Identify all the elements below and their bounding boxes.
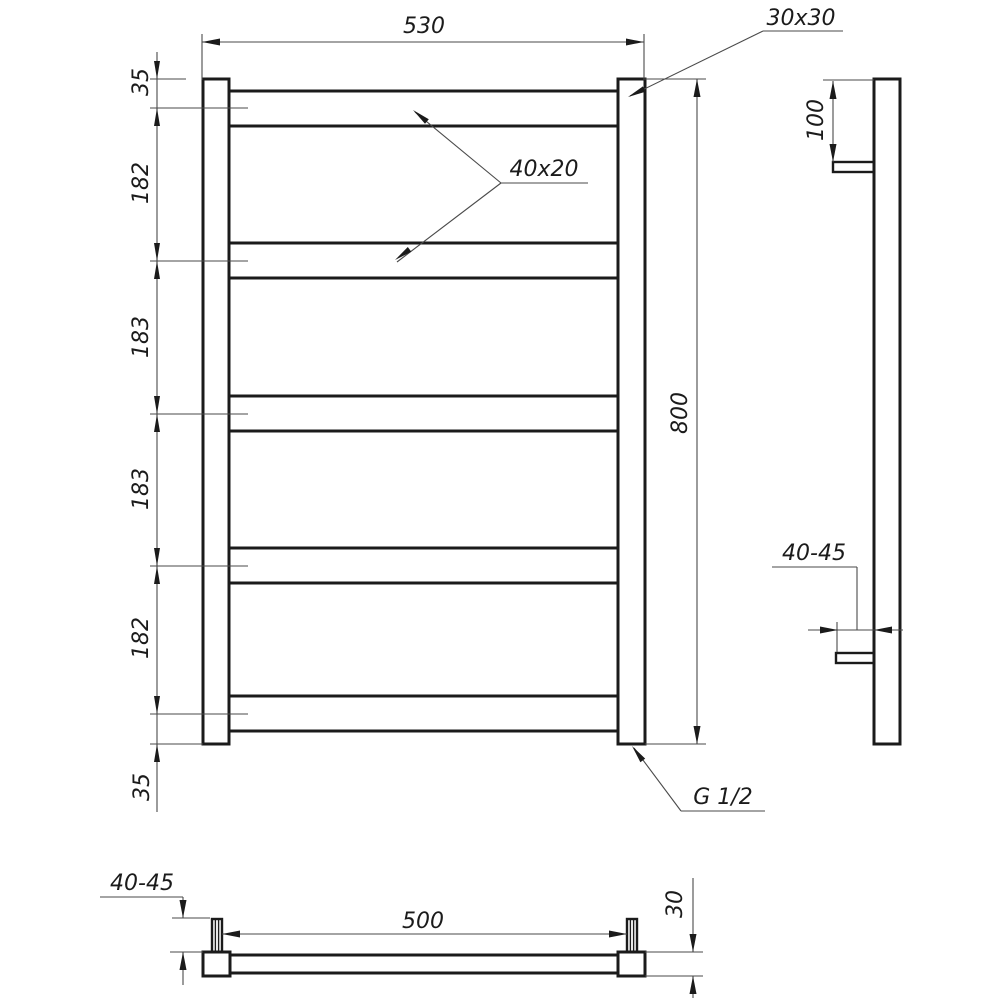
right-bracket-block xyxy=(618,952,645,976)
arrowhead xyxy=(626,39,644,46)
drawing-page: 530 35 182 183 183 182 35 800 xyxy=(0,0,1000,1000)
label-spacing-1: 182 xyxy=(129,162,154,204)
towel-rail-technical-drawing: 530 35 182 183 183 182 35 800 xyxy=(0,0,1000,1000)
leader-post-profile: 30x30 xyxy=(628,6,843,97)
side-view xyxy=(833,79,900,744)
rung-3 xyxy=(229,396,618,431)
label-overall-width: 530 xyxy=(403,14,445,39)
label-overall-height: 800 xyxy=(668,392,693,434)
label-spacing-2: 183 xyxy=(129,316,154,358)
dimension-side-wall-clearance: 40-45 xyxy=(772,541,903,652)
dimension-bracket-span: 500 xyxy=(222,909,627,938)
dimension-overall-width: 530 xyxy=(202,14,644,80)
label-bracket-top-offset: 100 xyxy=(804,99,829,141)
right-post xyxy=(618,79,645,744)
leader-connection-thread: G 1/2 xyxy=(632,746,765,811)
label-side-wall-clearance: 40-45 xyxy=(782,541,846,566)
dimension-profile-depth: 30 xyxy=(645,878,703,998)
label-bottom-wall-clearance: 40-45 xyxy=(110,871,174,896)
top-wall-bracket xyxy=(833,162,874,172)
label-profile-depth: 30 xyxy=(663,890,688,918)
rung-4 xyxy=(229,548,618,583)
dimension-bottom-wall-clearance: 40-45 xyxy=(100,871,210,985)
front-view xyxy=(203,79,645,744)
label-post-profile: 30x30 xyxy=(766,6,835,31)
right-pipe-fitting xyxy=(627,919,637,952)
rung-5 xyxy=(229,696,618,731)
left-pipe-fitting xyxy=(212,919,222,952)
side-post xyxy=(874,79,900,744)
dimension-bracket-top-offset: 100 xyxy=(804,80,874,162)
label-bracket-span: 500 xyxy=(402,909,444,934)
dimension-overall-height: 800 xyxy=(645,79,706,744)
left-bracket-block xyxy=(203,952,230,976)
label-connection-thread: G 1/2 xyxy=(693,785,752,810)
left-post xyxy=(203,79,229,744)
arrowhead xyxy=(202,39,220,46)
label-spacing-bottom: 35 xyxy=(130,773,155,801)
bottom-wall-bracket xyxy=(836,653,874,663)
label-spacing-4: 182 xyxy=(129,617,154,659)
leader-rung-profile: 40x20 xyxy=(395,110,588,262)
rung-2 xyxy=(229,243,618,278)
label-spacing-top: 35 xyxy=(129,68,154,96)
label-rung-profile: 40x20 xyxy=(509,157,578,182)
label-spacing-3: 183 xyxy=(129,468,154,510)
